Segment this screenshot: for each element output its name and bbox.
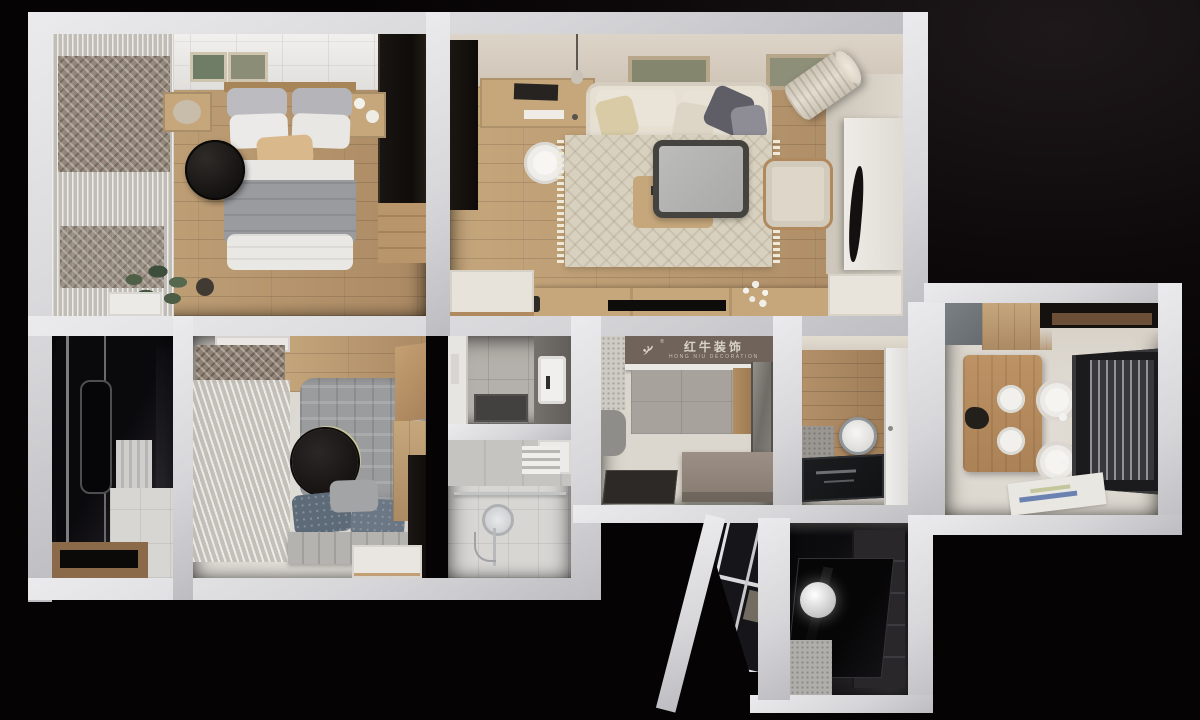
storage-box-white bbox=[352, 545, 422, 578]
table-lamp bbox=[366, 110, 379, 123]
low-cabinet bbox=[828, 274, 903, 316]
decor-pillow bbox=[173, 100, 201, 124]
wall-segment bbox=[448, 424, 571, 440]
partition-knob bbox=[1061, 459, 1069, 467]
table-centerpiece bbox=[965, 407, 989, 429]
faucet bbox=[546, 376, 550, 389]
wall-segment-diagonal bbox=[656, 514, 725, 713]
wall-segment bbox=[924, 283, 1182, 303]
balcony-dark bbox=[790, 522, 908, 695]
shower-floor-mat bbox=[474, 394, 528, 422]
towel-bar bbox=[454, 492, 566, 495]
desk-paper bbox=[524, 110, 564, 119]
brand-name-en: HONG NIU DECORATION bbox=[669, 354, 759, 360]
tiled-wall bbox=[631, 370, 733, 434]
brand-watermark: ® 红牛装饰 HONG NIU DECORATION bbox=[625, 336, 773, 364]
window-mullion bbox=[717, 574, 764, 592]
master-bedroom bbox=[52, 34, 426, 316]
television bbox=[608, 300, 726, 311]
brand-name-cn: 红牛装饰 bbox=[684, 341, 744, 353]
pillow-gray bbox=[329, 479, 378, 513]
slate-cabinet bbox=[945, 303, 982, 345]
dining-room bbox=[945, 303, 1158, 515]
wall-segment bbox=[571, 316, 601, 600]
wall-segment bbox=[773, 316, 802, 522]
shower-room bbox=[448, 440, 571, 578]
balcony-study bbox=[52, 336, 173, 578]
utensil bbox=[816, 469, 856, 474]
sink-basin bbox=[538, 356, 566, 404]
white-door bbox=[884, 348, 908, 505]
low-cabinet bbox=[450, 270, 534, 316]
canvas-brush-stroke bbox=[846, 166, 866, 263]
wall-segment bbox=[28, 578, 601, 600]
wall-segment bbox=[908, 515, 933, 713]
wall-segment bbox=[758, 518, 790, 700]
dresser-wood bbox=[378, 203, 426, 263]
pendant-lamp bbox=[571, 70, 583, 84]
logo-wall: ® 红牛装饰 HONG NIU DECORATION bbox=[625, 336, 773, 364]
wall-segment bbox=[28, 12, 52, 602]
wall-segment bbox=[903, 12, 928, 322]
registered-mark: ® bbox=[660, 339, 664, 345]
woven-curtain-band bbox=[195, 345, 285, 383]
canvas-art bbox=[844, 118, 903, 270]
shelf-wood-inlay bbox=[1052, 313, 1152, 325]
plant-pot bbox=[196, 278, 214, 296]
wall-segment bbox=[173, 316, 193, 600]
wall-segment bbox=[1158, 283, 1182, 535]
bathroom-vanity bbox=[448, 336, 571, 424]
bench-white bbox=[108, 292, 162, 316]
utensil bbox=[824, 479, 854, 483]
ottoman-black bbox=[185, 140, 245, 200]
sheer-curtain bbox=[193, 380, 290, 562]
bed-blanket-white bbox=[227, 234, 353, 270]
desk bbox=[480, 78, 595, 128]
living-room bbox=[450, 34, 903, 316]
dark-counter bbox=[802, 454, 884, 502]
frosted-partition bbox=[601, 336, 625, 410]
hanging-towel bbox=[451, 354, 459, 384]
wall-art-frame bbox=[190, 52, 227, 82]
wall-segment bbox=[924, 515, 1182, 535]
mat-blue-streak bbox=[1019, 491, 1077, 503]
woven-curtain-band bbox=[58, 56, 170, 172]
entry-hall: ® 红牛装饰 HONG NIU DECORATION bbox=[601, 336, 773, 505]
door-handle bbox=[888, 426, 893, 431]
dining-table bbox=[963, 355, 1042, 472]
mirror-panel bbox=[80, 380, 112, 494]
chair-seat bbox=[533, 151, 557, 175]
wall-segment bbox=[908, 302, 945, 522]
window-with-blinds bbox=[1072, 348, 1158, 495]
gray-mat bbox=[802, 426, 834, 458]
black-shelf-band bbox=[1040, 303, 1158, 328]
hall-chair-gray bbox=[601, 410, 626, 456]
kitchen-wc bbox=[802, 336, 908, 505]
white-sphere-lamp bbox=[800, 582, 836, 618]
wood-shelf bbox=[52, 542, 148, 578]
wall-art-frame bbox=[228, 52, 268, 82]
chair-seat bbox=[1045, 388, 1069, 412]
folded-towels bbox=[522, 446, 560, 474]
shower-hose bbox=[474, 532, 496, 562]
partition-knob bbox=[1059, 413, 1067, 421]
shelf-recess bbox=[60, 550, 138, 568]
coffee-table-top bbox=[653, 140, 749, 218]
floorplan-render-stage: ® 红牛装饰 HONG NIU DECORATION bbox=[0, 0, 1200, 720]
wall-segment bbox=[28, 12, 928, 34]
place-setting bbox=[997, 427, 1025, 455]
floor-mat-art bbox=[1007, 472, 1106, 515]
place-setting bbox=[997, 385, 1025, 413]
desktop-monitor bbox=[514, 83, 559, 101]
dining-chair bbox=[1036, 379, 1078, 421]
wood-trim bbox=[733, 368, 751, 434]
tile-corner bbox=[790, 640, 832, 695]
wall-segment bbox=[573, 505, 933, 523]
vertical-blinds bbox=[1090, 360, 1154, 480]
desk-mouse bbox=[572, 114, 578, 120]
bull-logo-icon bbox=[639, 342, 655, 358]
round-basin bbox=[839, 417, 877, 455]
tv-wall-black-panel bbox=[450, 40, 478, 210]
wood-corner-panel bbox=[395, 343, 426, 423]
wall-segment bbox=[426, 12, 450, 336]
armchair bbox=[763, 158, 833, 230]
entry-floor-mat bbox=[602, 470, 678, 504]
flower-vase bbox=[734, 276, 782, 316]
bedroom-2 bbox=[193, 336, 426, 578]
nightstand bbox=[163, 92, 212, 132]
pendant-lamp-cord bbox=[576, 34, 578, 72]
entry-bench bbox=[682, 452, 773, 502]
